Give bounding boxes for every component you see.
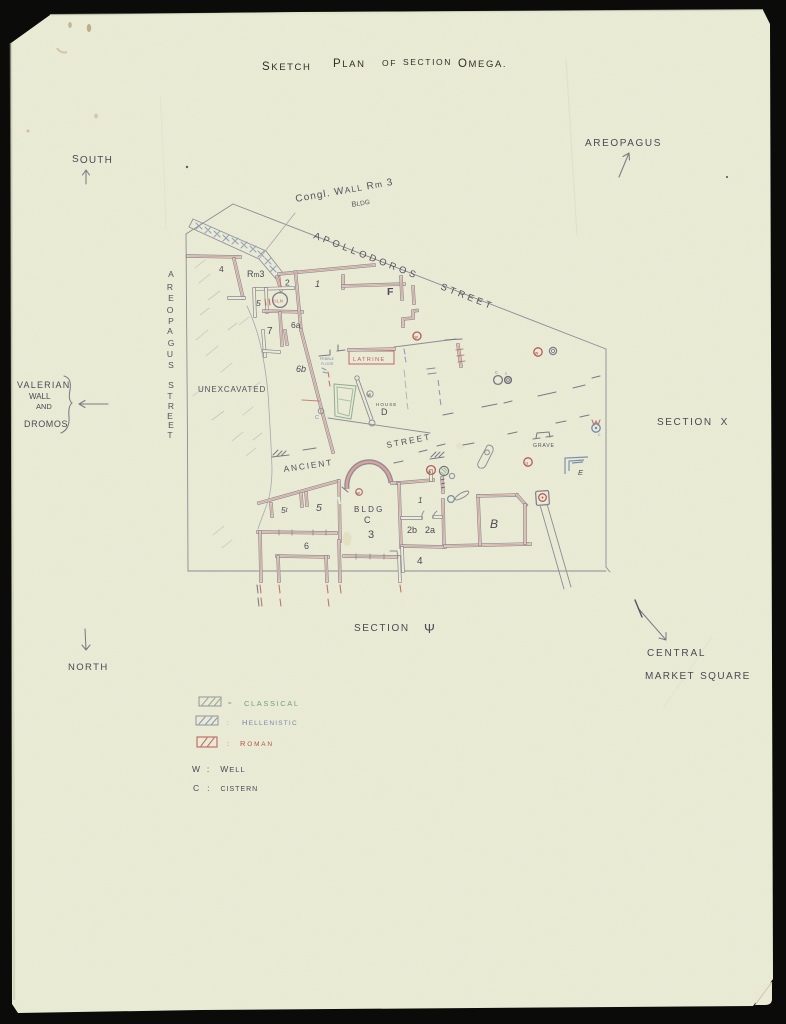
svg-text:T: T [167, 391, 172, 401]
svg-text:AREOPAGUS: AREOPAGUS [585, 138, 662, 149]
svg-text:C: C [364, 515, 371, 525]
svg-text:SECTION: SECTION [403, 57, 452, 67]
svg-text:SECTION: SECTION [354, 623, 410, 634]
svg-text:7: 7 [267, 326, 273, 337]
svg-text:SKETCH: SKETCH [262, 61, 311, 73]
svg-text:4: 4 [219, 264, 224, 274]
svg-text:R: R [168, 401, 174, 411]
svg-text:SOUTH: SOUTH [72, 154, 113, 166]
svg-text:A: A [167, 326, 173, 336]
svg-text:6: 6 [304, 541, 309, 551]
svg-text:6b: 6b [296, 364, 306, 374]
svg-text:=: = [228, 701, 232, 707]
svg-text:5: 5 [316, 502, 322, 514]
svg-text:ROMAN: ROMAN [240, 739, 274, 748]
svg-text:GRAVE: GRAVE [533, 443, 555, 449]
svg-text:OF: OF [382, 58, 397, 68]
svg-text:HELLENISTIC: HELLENISTIC [242, 718, 298, 727]
svg-text:w: w [368, 393, 372, 399]
svg-text:2: 2 [285, 278, 290, 288]
svg-text:PEBBLE: PEBBLE [320, 357, 335, 361]
svg-text:3: 3 [368, 529, 374, 541]
svg-text:2b: 2b [407, 525, 417, 535]
svg-text:E: E [168, 293, 174, 303]
svg-text:DROMOS: DROMOS [24, 419, 68, 429]
svg-text:G: G [168, 338, 175, 348]
svg-text:O: O [167, 305, 174, 315]
svg-text:5: 5 [256, 298, 261, 308]
svg-text:FLOOR: FLOOR [321, 362, 334, 366]
svg-text:OMEGA.: OMEGA. [458, 58, 507, 70]
svg-text:1: 1 [315, 279, 320, 289]
svg-text:LATRINE: LATRINE [353, 357, 385, 363]
svg-text:CENTRAL: CENTRAL [647, 648, 706, 659]
svg-text:F: F [387, 286, 394, 298]
svg-text:CLASSICAL: CLASSICAL [244, 699, 300, 708]
svg-text:4: 4 [417, 556, 423, 567]
svg-text:Ψ: Ψ [424, 621, 435, 636]
svg-text:2a: 2a [425, 525, 435, 535]
svg-text:U: U [167, 349, 173, 359]
svg-text:AND: AND [36, 402, 52, 411]
svg-text:E: E [168, 420, 174, 430]
svg-text:BLDG: BLDG [354, 505, 385, 514]
svg-text:6a: 6a [291, 320, 301, 330]
svg-text:KILN: KILN [272, 299, 283, 304]
svg-text:B: B [490, 517, 498, 531]
svg-text:R: R [167, 282, 173, 292]
svg-text:A: A [168, 269, 174, 279]
svg-text:UNEXCAVATED: UNEXCAVATED [198, 385, 266, 394]
svg-text:P: P [168, 316, 174, 326]
svg-text:S: S [168, 380, 174, 390]
svg-text:S: S [168, 360, 174, 370]
svg-text:T: T [167, 430, 172, 440]
svg-text:VALERIAN: VALERIAN [17, 380, 70, 390]
svg-text:WALL: WALL [29, 392, 51, 401]
svg-text:C: C [315, 415, 319, 421]
svg-text:NORTH: NORTH [68, 662, 109, 673]
svg-text:1: 1 [418, 496, 422, 505]
svg-text:D: D [381, 407, 388, 417]
svg-text:PLAN: PLAN [333, 58, 366, 70]
svg-text::: : [227, 741, 229, 748]
